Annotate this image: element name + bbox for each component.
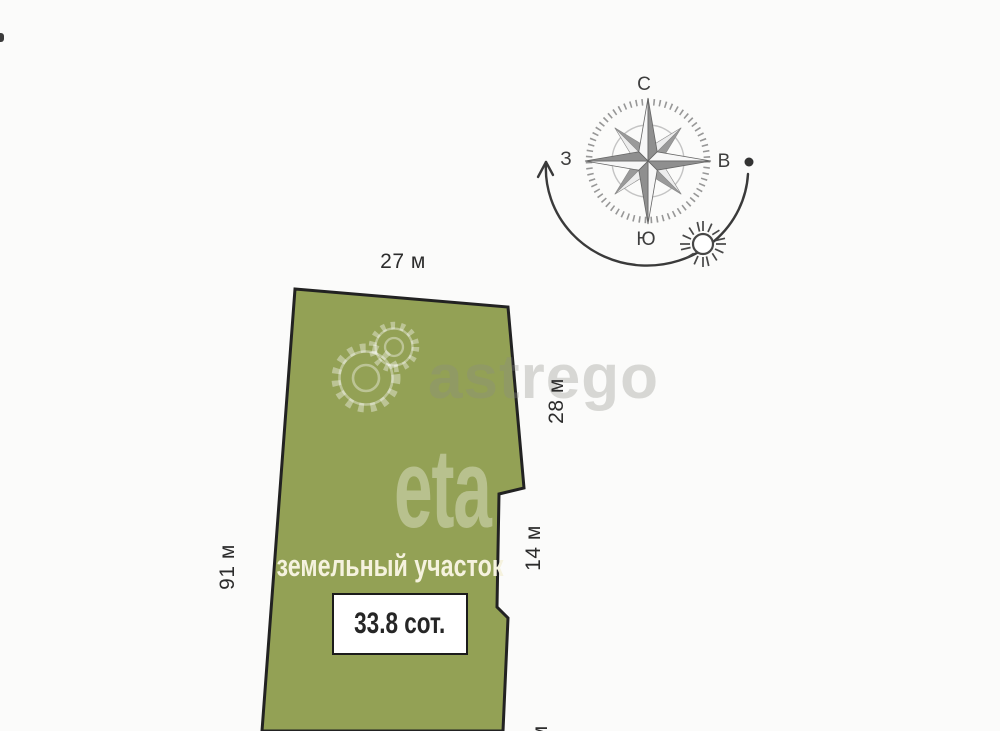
compass-west-label: З xyxy=(560,149,571,171)
dimension-label-right-upper: 28 м xyxy=(545,378,569,424)
area-box: 33.8 сот. xyxy=(332,593,468,655)
dimension-label-right-mid: 14 м xyxy=(522,525,546,571)
watermark-text-secondary: eta xyxy=(394,433,491,545)
plot-title: земельный участок xyxy=(277,548,504,584)
watermark-text-primary: astrego xyxy=(428,347,659,409)
compass-east-label: В xyxy=(718,151,731,173)
dimension-label-left: 91 м xyxy=(216,544,240,590)
dimension-label-bottom-partial: 1 м xyxy=(529,725,553,731)
east-marker-dot xyxy=(745,158,754,167)
compass-south-label: Ю xyxy=(636,229,655,251)
dimension-label-top: 27 м xyxy=(380,250,426,274)
land-plot-plan: astrego eta 27 м 28 м 14 м 91 м 1 м С В … xyxy=(0,0,1000,731)
compass-north-label: С xyxy=(637,74,651,96)
area-value: 33.8 сот. xyxy=(354,607,445,641)
edge-artifact xyxy=(0,33,4,42)
compass-rose-icon xyxy=(585,98,711,224)
sun-icon xyxy=(680,221,726,267)
